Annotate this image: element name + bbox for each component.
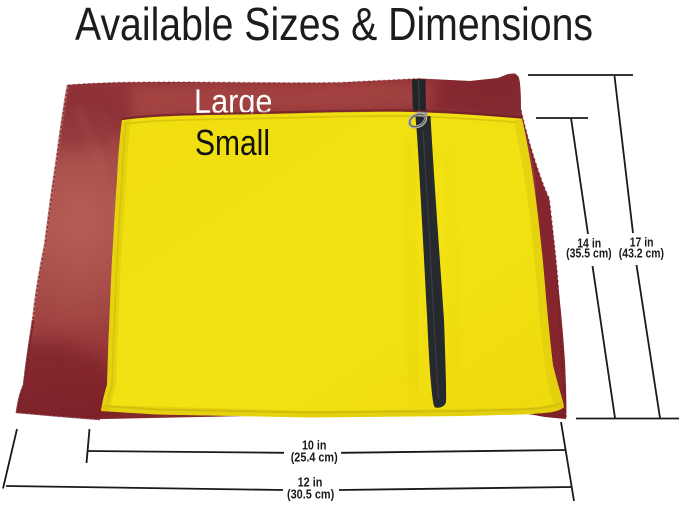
svg-text:Available Sizes & Dimensions: Available Sizes & Dimensions (75, 0, 593, 50)
svg-text:(35.5 cm): (35.5 cm) (566, 246, 612, 261)
svg-text:(43.2 cm): (43.2 cm) (619, 245, 664, 260)
svg-text:(25.4 cm): (25.4 cm) (291, 450, 338, 465)
svg-text:Small: Small (195, 123, 270, 163)
svg-text:(30.5 cm): (30.5 cm) (287, 487, 334, 502)
